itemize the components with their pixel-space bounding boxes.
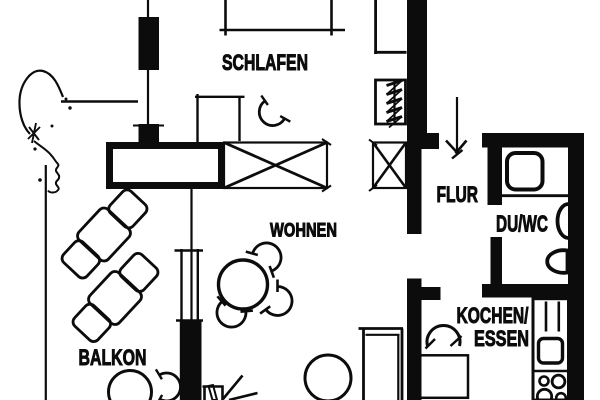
svg-text:BALKON: BALKON — [79, 345, 147, 370]
svg-text:KOCHEN/: KOCHEN/ — [457, 303, 529, 328]
svg-text:DU/WC: DU/WC — [496, 211, 548, 237]
svg-text:SCHLAFEN: SCHLAFEN — [222, 50, 308, 75]
svg-text:FLUR: FLUR — [437, 182, 479, 207]
svg-text:ESSEN: ESSEN — [474, 326, 529, 351]
svg-text:WOHNEN: WOHNEN — [270, 221, 337, 242]
